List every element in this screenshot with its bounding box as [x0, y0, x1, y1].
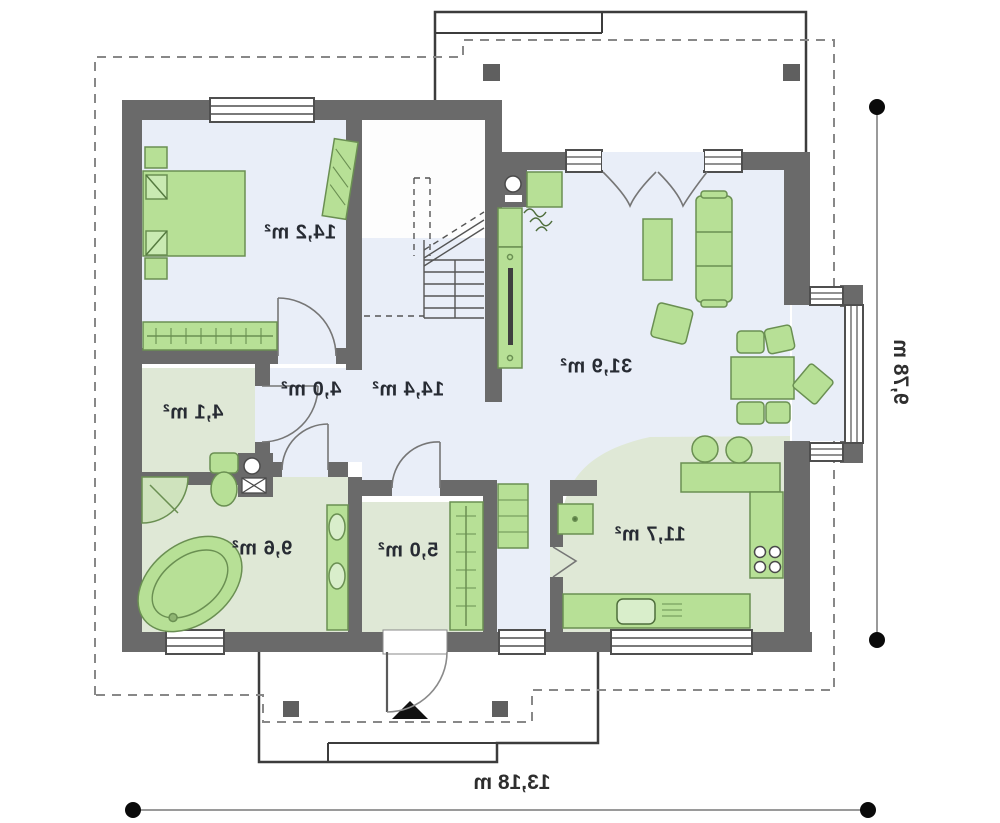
tv-bench: [498, 247, 522, 368]
nightstand: [145, 258, 167, 279]
bedroom-window: [210, 98, 314, 122]
wall-segment: [784, 441, 810, 652]
hall-window: [499, 630, 545, 654]
wall-segment: [440, 480, 497, 496]
dining-table: [731, 357, 794, 399]
bathroom-area-label: 9,6 m²: [232, 538, 293, 561]
fridge: [558, 504, 593, 534]
coffee-table: [643, 219, 672, 280]
porch-post: [283, 701, 299, 717]
dining-chair: [764, 324, 796, 354]
living-area-label: 31,9 m²: [560, 356, 632, 379]
bar-stool: [726, 437, 752, 463]
wall-segment: [255, 364, 270, 386]
width-dimension-label: 13,18 m: [473, 771, 550, 795]
fireplace: [527, 172, 562, 207]
chimney-flue-icon: [505, 176, 521, 192]
dining-chair: [766, 402, 790, 423]
wall-segment: [273, 462, 282, 477]
bay-window-top: [810, 287, 843, 305]
terrace-post: [783, 64, 800, 81]
sofa: [696, 191, 732, 307]
bar-counter: [681, 463, 780, 492]
kitchen-area-label: 11,7 m²: [614, 524, 685, 547]
wall-segment: [550, 577, 563, 632]
wall-segment: [550, 480, 597, 496]
washbasin-counter: [327, 505, 348, 630]
floor-plan-canvas: 14,2 m² 4,0 m² 14,4 m² 4,1 m² 9,6 m² 5,0…: [0, 0, 1000, 823]
bay-window-front: [845, 305, 863, 443]
wall-segment: [348, 477, 362, 632]
entrance-porch: [259, 652, 598, 762]
living-window-right: [704, 150, 742, 172]
living-window-left: [566, 150, 602, 172]
bedroom-wardrobe: [143, 322, 277, 350]
media-cabinet: [498, 208, 522, 247]
dining-chair: [737, 331, 764, 353]
height-dimension-label: 9,78 m: [888, 339, 912, 404]
closet-area-label: 4,1 m²: [163, 402, 224, 425]
kitchen-window: [611, 630, 752, 654]
porch-post: [492, 701, 508, 717]
wall-segment: [328, 462, 348, 477]
dining-chair: [737, 402, 764, 424]
hall-area-label: 14,4 m²: [372, 379, 444, 402]
armchair: [650, 302, 693, 345]
bathroom-window: [166, 630, 224, 654]
wall-segment: [784, 170, 810, 305]
bar-stool: [692, 436, 718, 462]
bay-window-bottom: [810, 443, 843, 461]
toilet: [210, 453, 238, 506]
sink-counter: [563, 594, 750, 628]
cooktop-counter: [750, 492, 783, 578]
tv-icon: [508, 268, 513, 345]
coat-wardrobe: [450, 502, 483, 630]
vestibule-area-label: 5,0 m²: [378, 540, 439, 563]
pillow: [146, 231, 167, 255]
wall-segment: [336, 348, 362, 364]
floor-plan-drawing: [0, 0, 1000, 823]
bedroom-area-label: 14,2 m²: [264, 222, 336, 245]
corridor-area-label: 4,0 m²: [281, 379, 342, 402]
stairwell-floor: [362, 120, 485, 238]
pillow: [146, 175, 167, 199]
wall-segment: [122, 100, 142, 652]
terrace-post: [483, 64, 500, 81]
wall-segment: [350, 480, 392, 496]
nightstand: [145, 147, 167, 168]
wall-segment: [483, 496, 497, 632]
drawer-cabinet: [498, 484, 528, 548]
chimney-vent-icon: [505, 195, 522, 202]
